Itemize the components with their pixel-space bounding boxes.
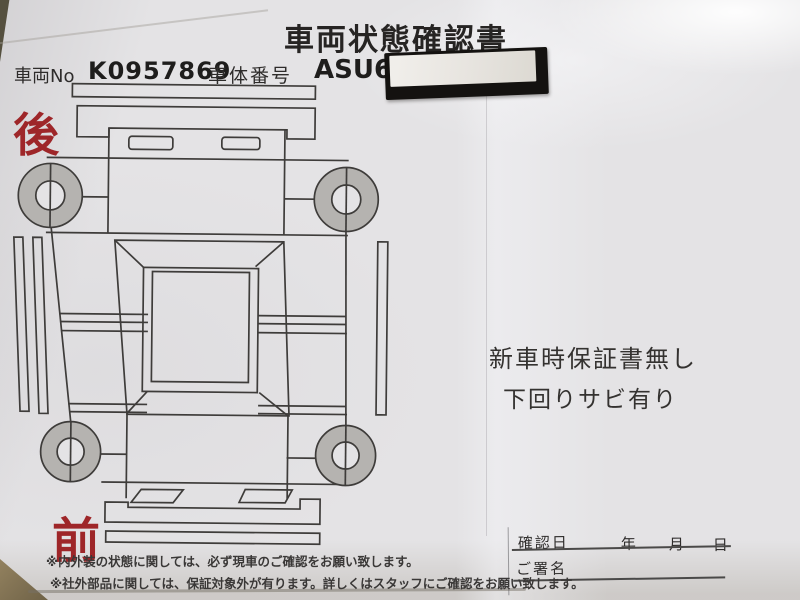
side-skirt-right — [376, 242, 388, 415]
footnote-aftermarket-parts: ※社外部品に関しては、保証対象外が有ります。詳しくはスタッフにご確認をお願い致し… — [50, 573, 584, 592]
body-width-line-upper — [47, 157, 349, 160]
wheel-rear-right — [314, 167, 379, 232]
door-lines-right-upper — [258, 316, 347, 334]
body-side-left — [49, 225, 73, 423]
cabin-corner-diagonals — [113, 240, 290, 416]
condition-note-warranty: 新車時保証書無し — [489, 339, 697, 374]
door-lines-right-lower — [258, 406, 347, 415]
front-body-sides — [126, 413, 288, 500]
rear-spoiler-bar — [72, 84, 315, 100]
cabin-outer-outline — [113, 240, 291, 416]
headlight-left — [131, 489, 183, 503]
year-label: 年 — [621, 533, 638, 554]
front-width-line — [101, 482, 348, 485]
wheel-front-left — [40, 421, 101, 482]
door-lines-left-upper — [59, 314, 148, 332]
cabin-inner-rect-inner — [151, 272, 249, 383]
condition-note-rust: 下回りサビ有り — [503, 380, 678, 414]
rear-bumper-shape — [77, 106, 315, 139]
tape-blank-label — [389, 50, 536, 87]
vin-redaction-tape — [384, 47, 549, 100]
car-underside-diagram — [0, 80, 400, 560]
sleeve-fold-line — [486, 96, 487, 536]
rear-marker: 後 — [13, 99, 59, 165]
photo-of-condition-sheet: 車両状態確認書 車両No K0957869 車体番号 ASU65 — [0, 0, 800, 600]
headlight-right — [239, 489, 292, 503]
wheel-front-right — [315, 425, 376, 486]
cabin-inner-rect-outer — [142, 267, 258, 392]
rear-body-sides — [108, 128, 285, 235]
body-side-right — [344, 229, 348, 427]
rear-reflector-left — [129, 136, 173, 149]
side-skirt-left-inner — [31, 237, 50, 413]
door-lines-left-lower — [68, 404, 147, 413]
footnote-interior-exterior: ※内外装の状態に関しては、必ず現車のご確認をお願い致します。 — [46, 551, 419, 570]
front-lower-bar — [106, 531, 320, 544]
front-bumper-shape — [105, 497, 320, 524]
body-width-line-lower — [46, 232, 348, 235]
rear-reflector-right — [222, 137, 260, 149]
side-skirt-left-outer — [12, 237, 31, 411]
wheel-rear-left — [18, 163, 83, 228]
month-label: 月 — [669, 533, 686, 554]
axle-lines — [80, 197, 319, 458]
